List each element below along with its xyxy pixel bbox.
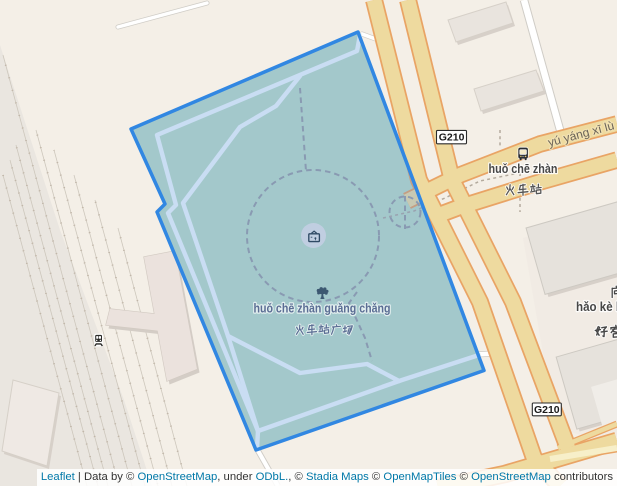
svg-text:hǎo kè bù: hǎo kè bù xyxy=(576,299,617,314)
svg-text:G210: G210 xyxy=(534,404,560,416)
svg-text:huǒ chē zhàn guǎng chǎng: huǒ chē zhàn guǎng chǎng xyxy=(254,302,391,316)
svg-text:huǒ chē zhàn: huǒ chē zhàn xyxy=(489,162,558,176)
svg-text:G210: G210 xyxy=(439,132,465,144)
